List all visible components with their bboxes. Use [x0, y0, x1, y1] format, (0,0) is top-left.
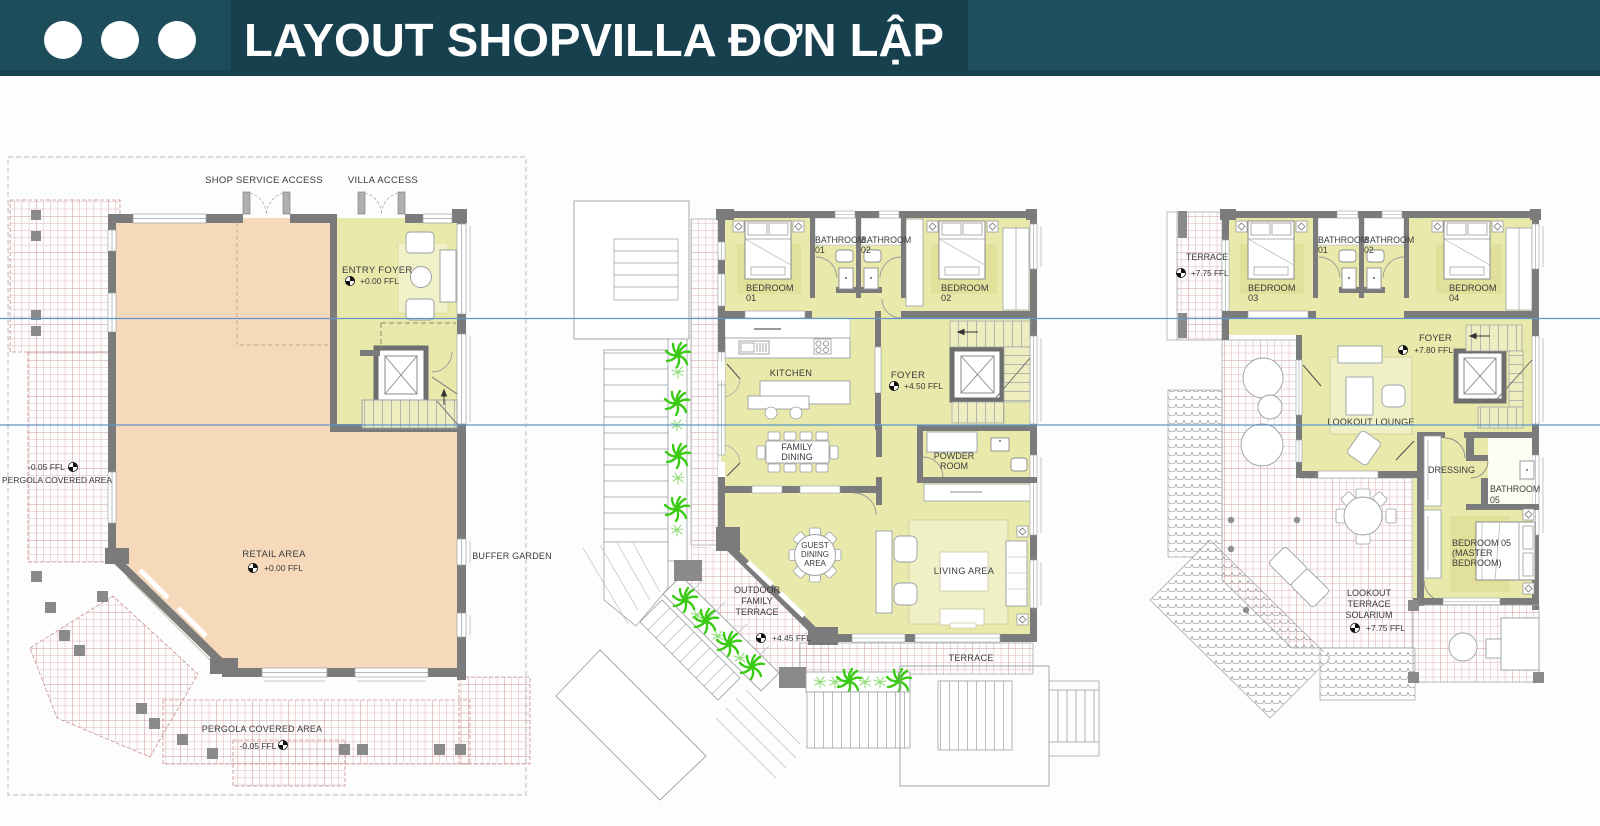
svg-text:PERGOLA COVERED AREA: PERGOLA COVERED AREA [2, 475, 112, 485]
svg-text:02: 02 [941, 293, 951, 303]
svg-text:VILLA ACCESS: VILLA ACCESS [348, 175, 418, 186]
svg-text:BEDROOM: BEDROOM [746, 283, 793, 293]
svg-text:+7.80 FFL: +7.80 FFL [1414, 345, 1453, 355]
svg-text:05: 05 [1490, 495, 1500, 505]
svg-text:PERGOLA COVERED AREA: PERGOLA COVERED AREA [202, 724, 323, 734]
svg-text:FAMILY: FAMILY [781, 442, 812, 452]
svg-text:GUEST: GUEST [801, 541, 829, 550]
svg-text:BATHROOM: BATHROOM [1364, 235, 1414, 245]
svg-text:DRESSING: DRESSING [1428, 465, 1475, 475]
svg-text:LOOKOUT: LOOKOUT [1347, 588, 1392, 598]
svg-text:02: 02 [861, 245, 871, 255]
svg-text:TERRACE: TERRACE [1347, 599, 1390, 609]
svg-text:BATHROOM: BATHROOM [861, 235, 911, 245]
svg-text:TERRACE: TERRACE [948, 653, 993, 663]
svg-text:SOLARIUM: SOLARIUM [1345, 610, 1392, 620]
svg-text:03: 03 [1248, 293, 1258, 303]
svg-text:BUFFER GARDEN: BUFFER GARDEN [472, 551, 552, 561]
svg-text:LIVING AREA: LIVING AREA [934, 566, 995, 576]
svg-text:ENTRY FOYER: ENTRY FOYER [342, 265, 413, 276]
svg-text:POWDER: POWDER [934, 451, 975, 461]
svg-text:BEDROOM: BEDROOM [1248, 283, 1295, 293]
svg-text:FAMILY: FAMILY [741, 596, 772, 606]
svg-text:OUTDOOR: OUTDOOR [734, 585, 780, 595]
svg-text:TERRACE: TERRACE [735, 607, 778, 617]
svg-text:+7.75 FFL: +7.75 FFL [1191, 269, 1229, 278]
svg-text:FOYER: FOYER [1419, 333, 1452, 344]
svg-text:DINING: DINING [781, 452, 813, 462]
svg-text:BATHROOM: BATHROOM [1318, 235, 1368, 245]
svg-text:01: 01 [815, 245, 825, 255]
svg-text:AREA: AREA [804, 559, 826, 568]
svg-text:-0.05 FFL: -0.05 FFL [28, 462, 65, 472]
svg-text:02: 02 [1364, 245, 1374, 255]
svg-text:+0.00 FFL: +0.00 FFL [360, 276, 399, 286]
svg-text:01: 01 [1318, 245, 1328, 255]
svg-text:RETAIL AREA: RETAIL AREA [242, 549, 306, 560]
svg-text:SHOP SERVICE ACCESS: SHOP SERVICE ACCESS [205, 175, 323, 186]
svg-text:-0.05 FFL: -0.05 FFL [240, 741, 277, 751]
svg-text:+4.50 FFL: +4.50 FFL [904, 381, 943, 391]
svg-text:ROOM: ROOM [940, 461, 968, 471]
svg-text:BEDROOM 05: BEDROOM 05 [1452, 538, 1511, 548]
svg-text:(MASTER: (MASTER [1452, 548, 1493, 558]
svg-text:BATHROOM: BATHROOM [1490, 484, 1540, 494]
svg-text:BATHROOM: BATHROOM [815, 235, 865, 245]
svg-text:FOYER: FOYER [891, 370, 925, 381]
svg-text:+4.45 FFL: +4.45 FFL [772, 633, 811, 643]
svg-text:LAYOUT SHOPVILLA ĐƠN LẬP: LAYOUT SHOPVILLA ĐƠN LẬP [244, 14, 944, 66]
svg-text:BEDROOM: BEDROOM [1449, 283, 1496, 293]
svg-text:TERRACE: TERRACE [1186, 252, 1228, 262]
svg-text:DINING: DINING [801, 550, 829, 559]
svg-text:01: 01 [746, 293, 756, 303]
svg-text:+0.00 FFL: +0.00 FFL [264, 563, 303, 573]
svg-text:BEDROOM: BEDROOM [941, 283, 988, 293]
svg-text:04: 04 [1449, 293, 1459, 303]
svg-text:BEDROOM): BEDROOM) [1452, 558, 1502, 568]
svg-text:+7.75 FFL: +7.75 FFL [1366, 623, 1405, 633]
svg-text:KITCHEN: KITCHEN [770, 368, 812, 378]
